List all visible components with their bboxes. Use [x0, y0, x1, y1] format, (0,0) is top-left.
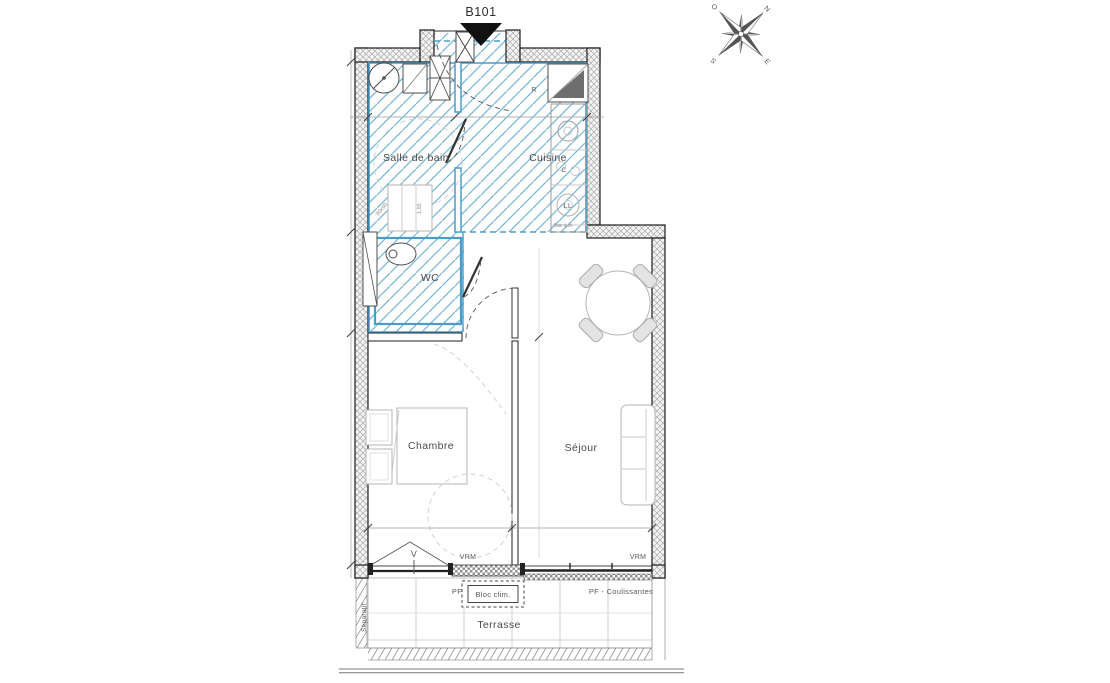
living-room-label: Séjour — [565, 442, 598, 454]
dining-table-icon — [586, 271, 650, 335]
unit-number-label: B101 — [465, 5, 496, 19]
terrace-label: Terrasse — [477, 619, 520, 631]
kitchen-label: Cuisine — [529, 152, 567, 164]
pf-label: PF — [452, 587, 462, 596]
living-room-door-leaf — [512, 288, 518, 338]
vanity-icon — [388, 185, 432, 231]
cooktop-label: C — [562, 167, 567, 174]
window-v-label: V — [411, 549, 417, 559]
wc-door-leaf — [463, 257, 482, 297]
separator-label: Séparatif — [361, 603, 368, 632]
washer-label: LL — [564, 203, 572, 210]
bedroom-label: Chambre — [408, 440, 454, 452]
compass-west-label: O — [709, 3, 718, 12]
fridge-label: R — [531, 87, 536, 94]
compass-north-label: N — [762, 5, 771, 14]
clearance-circle — [428, 474, 512, 558]
roller-blind-sill — [524, 574, 652, 580]
sorting-bin-label: Bac à tri — [554, 223, 572, 229]
vrm-left-label: VRM — [460, 554, 476, 561]
dim-clearance-label: 1,55 — [417, 203, 423, 214]
floor-plan-drawing: B101 N E S O Salle de bain Cuisine WC Ch… — [0, 0, 1110, 683]
bedroom-furniture — [366, 408, 512, 558]
vrm-right-label: VRM — [630, 554, 646, 561]
bathroom-label: Salle de bain — [383, 152, 449, 164]
living-room-furniture — [578, 263, 659, 505]
compass-east-label: E — [763, 58, 772, 66]
compass-south-label: S — [708, 57, 717, 65]
pf-sliding-label: PF - Coulissantes — [589, 587, 653, 596]
roller-blind-box — [452, 565, 524, 576]
compass-rose-icon: N E S O — [682, 0, 798, 93]
ac-unit-label: Bloc clim. — [475, 590, 510, 599]
ground-hatch — [368, 648, 652, 660]
windows — [368, 542, 652, 580]
sofa-icon — [621, 405, 655, 505]
floor-plan-page: B101 N E S O Salle de bain Cuisine WC Ch… — [0, 0, 1110, 683]
wc-label: WC — [421, 272, 439, 284]
